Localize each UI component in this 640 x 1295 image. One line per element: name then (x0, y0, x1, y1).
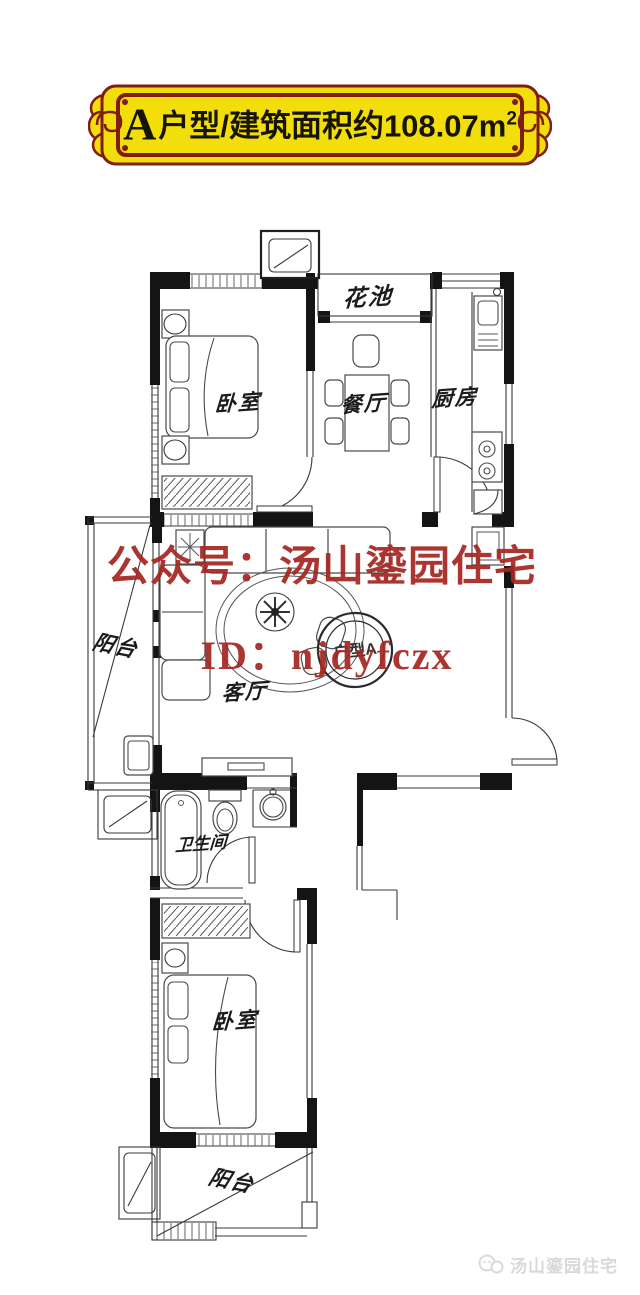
brand-logo-icon (477, 1254, 505, 1276)
room-label-kitchen: 厨房 (431, 380, 479, 413)
brand-watermark: 汤山鎏园住宅 (477, 1252, 618, 1277)
room-label-dining: 餐厅 (340, 386, 388, 419)
watermark-line2: ID：njdyfczx (200, 623, 453, 681)
furniture-balcony-left (124, 736, 153, 775)
room-label-bedroom-top: 卧室 (214, 385, 262, 418)
room-label-flower-bed: 花池 (342, 276, 394, 313)
watermark-line1: 公众号：汤山鎏园住宅 (107, 533, 537, 594)
floorplan-page: A户型/建筑面积约108.07m2 (0, 0, 640, 1295)
ac-platform-left (98, 790, 157, 839)
ac-platform-top (261, 231, 319, 278)
room-label-bathroom: 卫生间 (175, 828, 228, 856)
brand-watermark-text: 汤山鎏园住宅 (510, 1252, 618, 1277)
ac-platform-bottom (119, 1147, 160, 1219)
room-label-bedroom-bottom: 卧室 (211, 1003, 259, 1036)
